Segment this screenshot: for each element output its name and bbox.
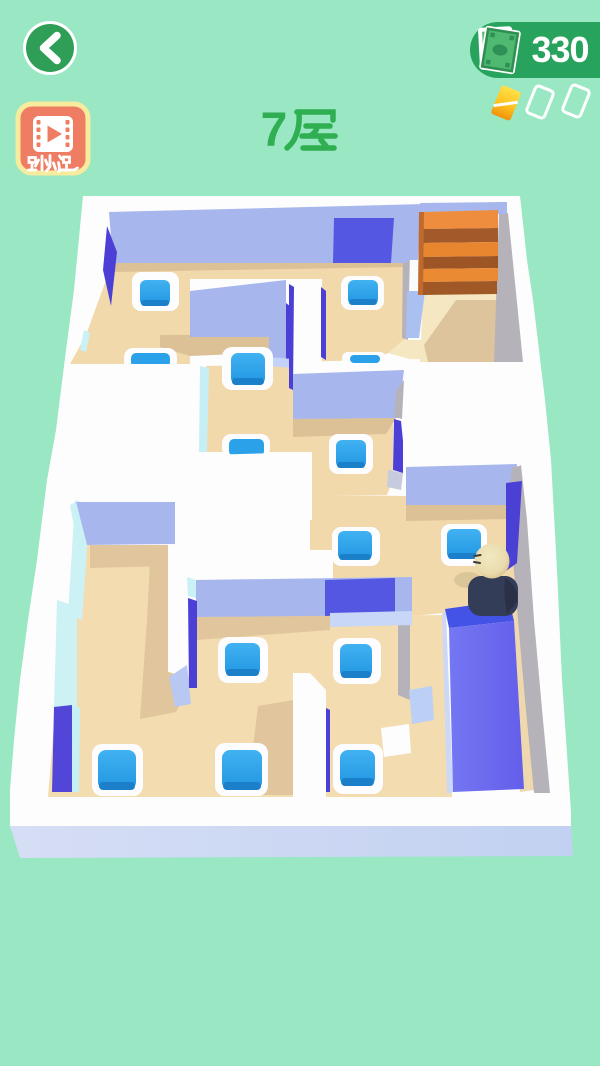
svg-text:7: 7 (261, 104, 288, 157)
svg-text:330: 330 (531, 29, 588, 70)
